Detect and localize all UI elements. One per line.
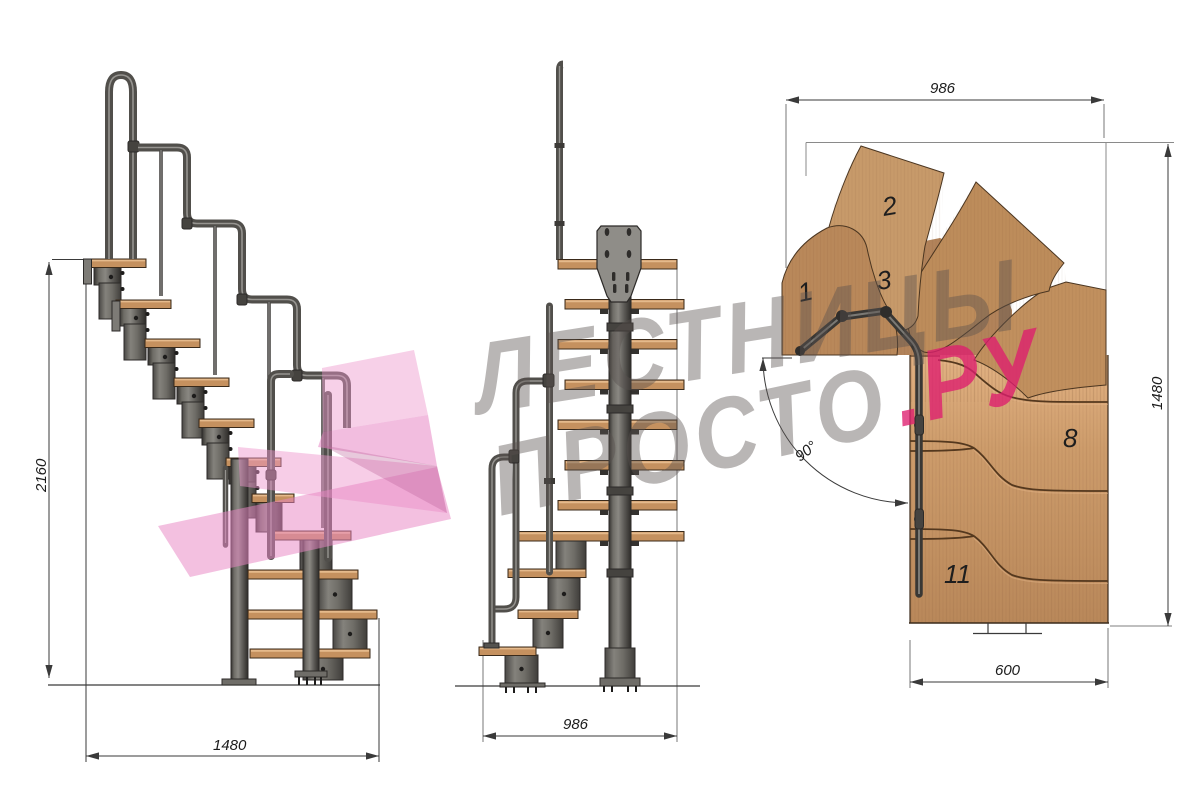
svg-text:986: 986 — [563, 716, 589, 733]
svg-text:2160: 2160 — [33, 458, 50, 493]
svg-text:11: 11 — [944, 559, 971, 589]
svg-text:1480: 1480 — [213, 737, 247, 754]
svg-text:600: 600 — [995, 662, 1021, 679]
svg-text:1480: 1480 — [1149, 376, 1166, 410]
svg-text:8: 8 — [1063, 423, 1078, 453]
svg-text:986: 986 — [930, 80, 956, 97]
